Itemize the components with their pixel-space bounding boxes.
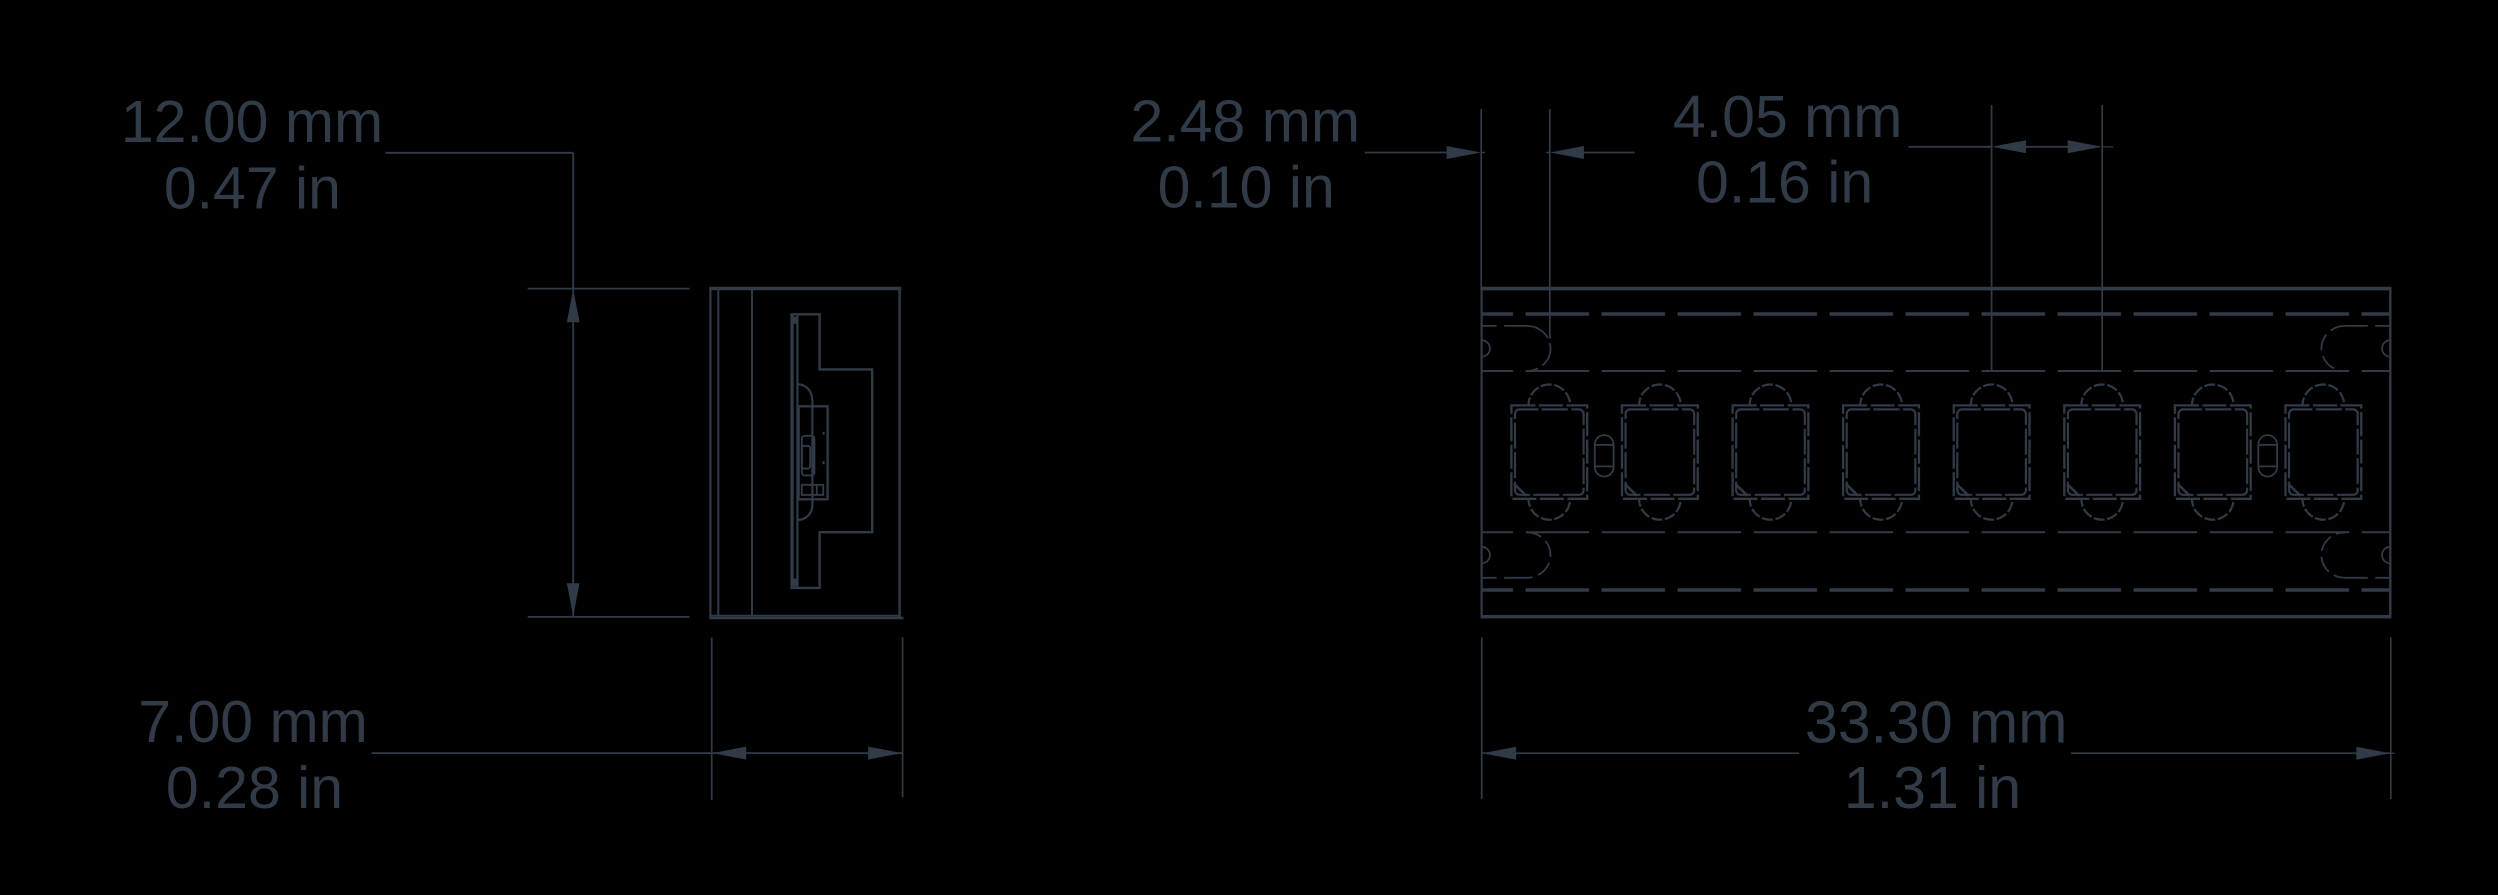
svg-text:1.31 in: 1.31 in [1844,755,2021,821]
svg-text:7.00 mm: 7.00 mm [138,689,368,755]
svg-text:33.30 mm: 33.30 mm [1805,689,2067,755]
svg-text:4.05 mm: 4.05 mm [1673,84,1903,150]
svg-text:12.00 mm: 12.00 mm [121,89,383,155]
svg-text:2.48 mm: 2.48 mm [1131,89,1361,155]
svg-text:0.10 in: 0.10 in [1158,154,1335,220]
svg-text:0.47 in: 0.47 in [164,155,341,221]
svg-text:0.16 in: 0.16 in [1696,150,1873,216]
svg-text:0.28 in: 0.28 in [166,755,343,821]
